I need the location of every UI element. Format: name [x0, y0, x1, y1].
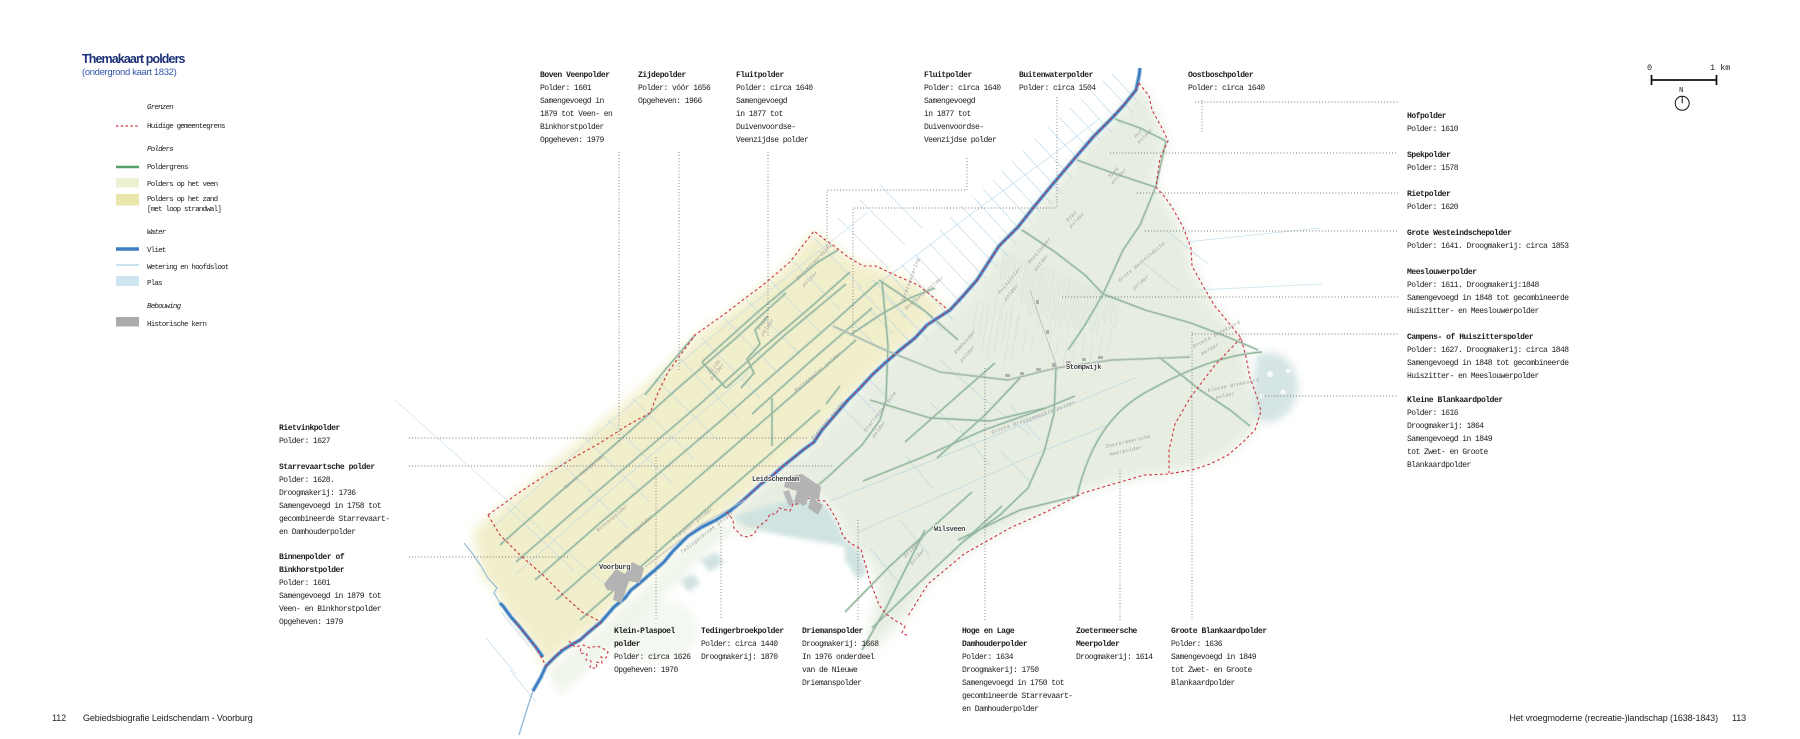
- svg-text:Leidschendam: Leidschendam: [752, 476, 799, 484]
- svg-text:1 km: 1 km: [1710, 63, 1730, 73]
- svg-text:N: N: [1679, 87, 1684, 95]
- svg-text:0: 0: [1647, 63, 1652, 73]
- svg-text:Voorburg: Voorburg: [599, 564, 630, 572]
- svg-text:Wilsveen: Wilsveen: [934, 526, 965, 534]
- svg-text:Stompwijk: Stompwijk: [1066, 364, 1101, 372]
